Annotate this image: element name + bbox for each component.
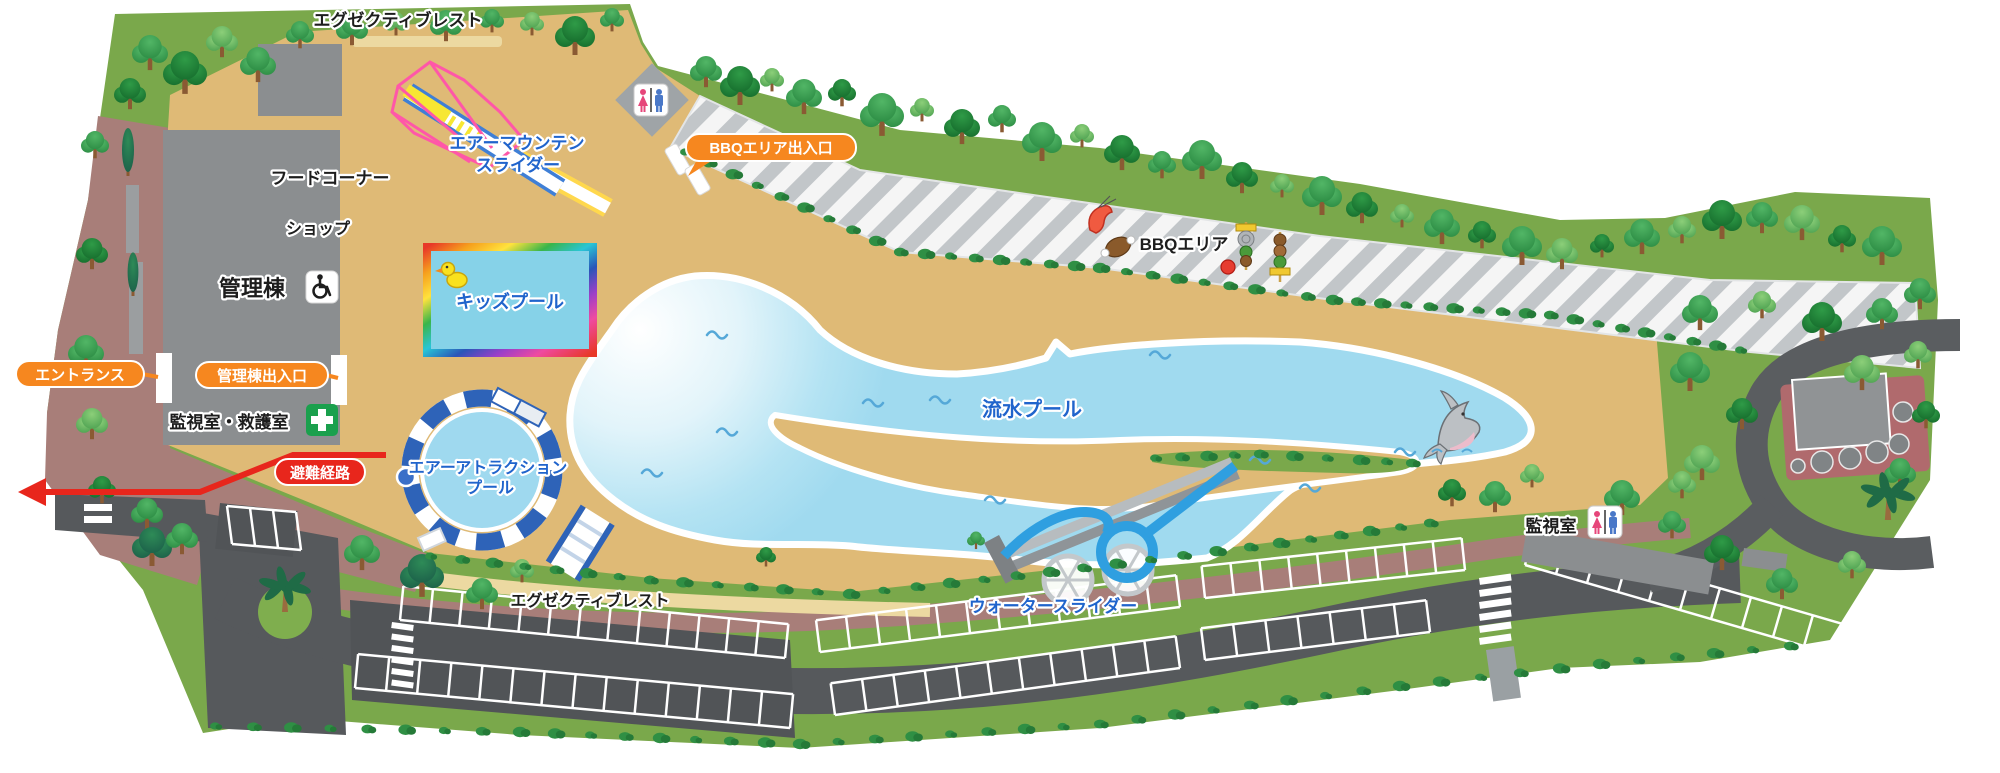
tree-icon	[760, 68, 784, 91]
label-monitor-room[interactable]: 監視室	[1526, 516, 1577, 536]
label-air-attraction-1[interactable]: エアーアトラクション	[409, 459, 567, 477]
label-food-corner[interactable]: フードコーナー	[271, 169, 390, 188]
label-kids-pool[interactable]: キッズプール	[456, 291, 564, 312]
callout-evacuation[interactable]: 避難経路	[275, 459, 365, 485]
label-air-mountain-1[interactable]: エアーマウンテン	[450, 134, 585, 153]
road-mark	[84, 504, 112, 511]
label-exec-rest-top[interactable]: エグゼクティブレスト	[314, 10, 483, 30]
label-air-mountain-2[interactable]: スライダー	[476, 155, 560, 175]
tree-icon	[988, 105, 1016, 132]
tomato-icon	[1221, 260, 1235, 274]
tree-icon	[828, 79, 856, 106]
exec-rest-deck-top[interactable]	[352, 36, 502, 47]
ramp	[126, 185, 139, 253]
wheelchair-icon	[306, 271, 338, 303]
restroom-icon[interactable]	[1588, 506, 1622, 538]
label-lazy-river[interactable]: 流水プール	[982, 397, 1082, 421]
tree-icon	[1070, 124, 1094, 147]
admin-door-left[interactable]	[156, 353, 172, 403]
admin-door-right[interactable]	[331, 355, 347, 405]
label-shop[interactable]: ショップ	[286, 219, 351, 238]
svg-text:BBQエリア出入口: BBQエリア出入口	[709, 139, 832, 157]
label-bbq-area[interactable]: BBQエリア	[1140, 235, 1229, 254]
first-aid-icon	[306, 404, 338, 436]
park-map: エグゼクティブレスト エアーマウンテン スライダー フードコーナー ショップ 管…	[0, 0, 2000, 773]
restroom-icon[interactable]	[634, 84, 668, 116]
road-mark	[84, 516, 112, 523]
map-canvas: エグゼクティブレスト エアーマウンテン スライダー フードコーナー ショップ 管…	[0, 0, 2000, 773]
storage-building[interactable]	[258, 44, 342, 116]
svg-text:避難経路: 避難経路	[290, 464, 351, 482]
tree-icon	[910, 98, 934, 121]
callout-entrance[interactable]: エントランス	[16, 361, 158, 387]
label-monitor-rescue[interactable]: 監視室・救護室	[170, 412, 289, 432]
label-water-slider[interactable]: ウォータースライダー	[969, 596, 1137, 616]
svg-text:管理棟出入口: 管理棟出入口	[217, 367, 307, 385]
bush-icon	[361, 725, 376, 734]
callout-admin-exit[interactable]: 管理棟出入口	[196, 362, 338, 388]
mini-parking[interactable]	[215, 503, 301, 557]
svg-text:エントランス: エントランス	[35, 367, 125, 384]
label-admin-building[interactable]: 管理棟	[219, 276, 286, 301]
label-air-attraction-2[interactable]: プール	[466, 478, 514, 497]
label-exec-rest-bottom[interactable]: エグゼクティブレスト	[510, 591, 669, 610]
